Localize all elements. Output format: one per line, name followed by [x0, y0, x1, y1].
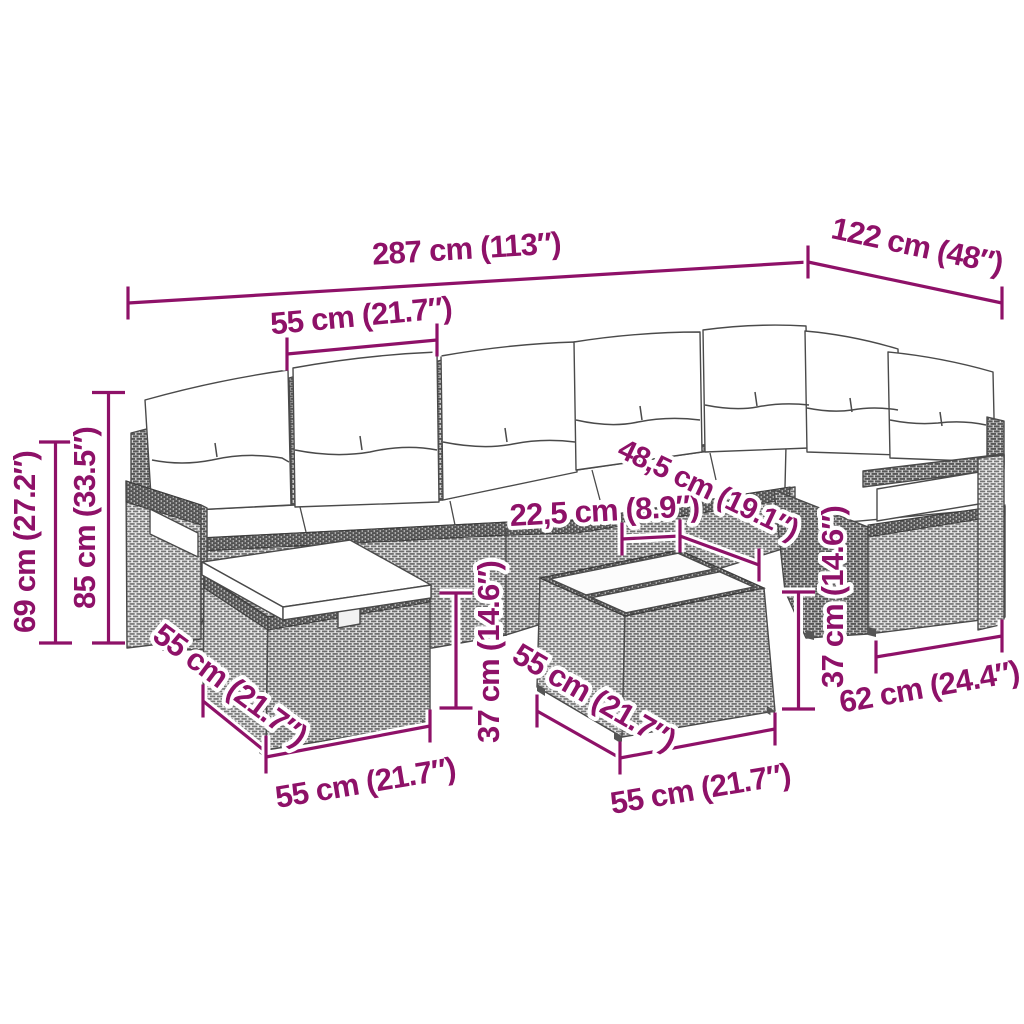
svg-text:37 cm (14.6″): 37 cm (14.6″) — [815, 506, 850, 688]
svg-text:37 cm (14.6″): 37 cm (14.6″) — [471, 561, 506, 743]
svg-text:85 cm (33.5″): 85 cm (33.5″) — [67, 427, 102, 609]
svg-text:69 cm (27.2″): 69 cm (27.2″) — [7, 451, 42, 633]
